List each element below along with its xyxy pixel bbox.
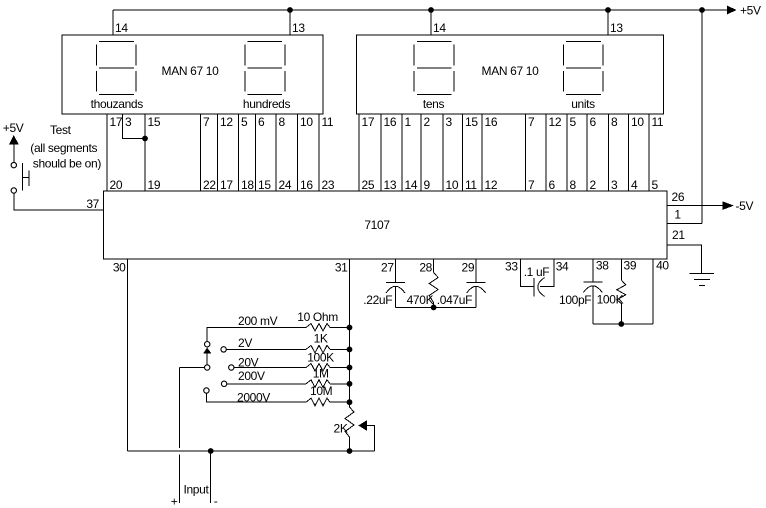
svg-text:2: 2 [590, 178, 597, 192]
svg-text:16: 16 [300, 178, 313, 192]
svg-text:2: 2 [424, 115, 431, 129]
svg-text:17: 17 [110, 115, 123, 129]
svg-text:16: 16 [485, 115, 498, 129]
svg-text:13: 13 [384, 178, 397, 192]
svg-text:100K: 100K [307, 351, 334, 365]
svg-text:11: 11 [465, 178, 477, 192]
svg-text:11: 11 [652, 115, 664, 129]
svg-text:10 Ohm: 10 Ohm [297, 310, 338, 324]
svg-text:200 mV: 200 mV [238, 314, 278, 328]
svg-text:100pF: 100pF [559, 293, 591, 307]
svg-text:8: 8 [611, 115, 618, 129]
svg-text:7: 7 [528, 178, 535, 192]
svg-text:20V: 20V [238, 355, 259, 369]
svg-text:15: 15 [465, 115, 478, 129]
svg-text:13: 13 [610, 21, 623, 35]
svg-text:+5V: +5V [3, 121, 24, 135]
svg-text:1K: 1K [314, 332, 328, 346]
svg-text:21: 21 [672, 228, 685, 242]
svg-text:Test: Test [50, 123, 72, 137]
svg-text:14: 14 [433, 21, 446, 35]
svg-text:12: 12 [220, 115, 233, 129]
svg-text:3: 3 [611, 178, 618, 192]
svg-text:1M: 1M [313, 367, 329, 381]
svg-text:31: 31 [335, 261, 348, 275]
svg-text:should be on): should be on) [33, 157, 102, 171]
svg-text:5: 5 [570, 115, 577, 129]
svg-text:20: 20 [110, 178, 123, 192]
svg-text:thouzands: thouzands [91, 97, 144, 111]
svg-text:100K: 100K [597, 293, 624, 307]
svg-text:15: 15 [258, 178, 271, 192]
svg-text:28: 28 [419, 261, 432, 275]
svg-text:8: 8 [279, 115, 286, 129]
svg-text:16: 16 [384, 115, 397, 129]
svg-text:14: 14 [115, 21, 128, 35]
svg-text:15: 15 [148, 115, 161, 129]
svg-text:18: 18 [241, 178, 254, 192]
svg-text:2K: 2K [334, 422, 348, 436]
svg-text:+: + [171, 495, 178, 508]
svg-text:10: 10 [631, 115, 644, 129]
svg-text:.1 uF: .1 uF [524, 265, 550, 279]
svg-text:6: 6 [590, 115, 597, 129]
svg-text:1: 1 [674, 208, 681, 222]
svg-text:29: 29 [462, 261, 475, 275]
svg-text:30: 30 [113, 261, 126, 275]
svg-text:hundreds: hundreds [243, 97, 291, 111]
svg-text:470K: 470K [407, 293, 434, 307]
svg-text:Input: Input [184, 483, 210, 497]
svg-text:27: 27 [381, 261, 394, 275]
svg-text:24: 24 [279, 178, 292, 192]
svg-text:6: 6 [549, 178, 556, 192]
svg-text:5: 5 [652, 178, 659, 192]
svg-text:3: 3 [446, 115, 453, 129]
svg-text:(all segments: (all segments [30, 141, 97, 155]
svg-text:.047uF: .047uF [437, 293, 472, 307]
svg-text:8: 8 [570, 178, 577, 192]
svg-text:MAN 67 10: MAN 67 10 [482, 64, 540, 78]
svg-text:2000V: 2000V [237, 391, 270, 405]
svg-text:units: units [571, 97, 595, 111]
svg-text:37: 37 [86, 197, 99, 211]
svg-text:-: - [214, 494, 218, 508]
svg-text:17: 17 [362, 115, 375, 129]
svg-text:6: 6 [258, 115, 265, 129]
svg-text:4: 4 [631, 178, 638, 192]
svg-text:9: 9 [424, 178, 431, 192]
svg-text:-5V: -5V [736, 199, 754, 213]
svg-text:10M: 10M [310, 384, 333, 398]
svg-text:22: 22 [203, 178, 216, 192]
svg-text:MAN 67 10: MAN 67 10 [162, 64, 220, 78]
svg-text:7107: 7107 [364, 218, 390, 232]
svg-text:25: 25 [362, 178, 375, 192]
svg-text:2V: 2V [238, 336, 252, 350]
svg-text:7: 7 [203, 115, 210, 129]
svg-text:tens: tens [423, 97, 445, 111]
svg-text:+5V: +5V [740, 4, 761, 18]
svg-text:10: 10 [300, 115, 313, 129]
svg-text:10: 10 [446, 178, 459, 192]
svg-text:7: 7 [528, 115, 535, 129]
svg-text:11: 11 [322, 115, 334, 129]
svg-text:1: 1 [405, 115, 412, 129]
svg-text:17: 17 [220, 178, 233, 192]
svg-text:26: 26 [672, 190, 685, 204]
svg-text:38: 38 [596, 259, 609, 273]
svg-text:40: 40 [656, 259, 669, 273]
svg-text:14: 14 [405, 178, 418, 192]
svg-text:39: 39 [624, 259, 637, 273]
svg-text:13: 13 [292, 21, 305, 35]
svg-text:34: 34 [556, 260, 569, 274]
svg-text:12: 12 [549, 115, 562, 129]
svg-text:23: 23 [322, 178, 335, 192]
svg-text:.22uF: .22uF [363, 293, 392, 307]
svg-text:3: 3 [125, 115, 132, 129]
svg-text:200V: 200V [238, 369, 265, 383]
svg-text:19: 19 [148, 178, 161, 192]
svg-text:33: 33 [505, 260, 518, 274]
svg-text:12: 12 [485, 178, 498, 192]
svg-text:5: 5 [241, 115, 248, 129]
